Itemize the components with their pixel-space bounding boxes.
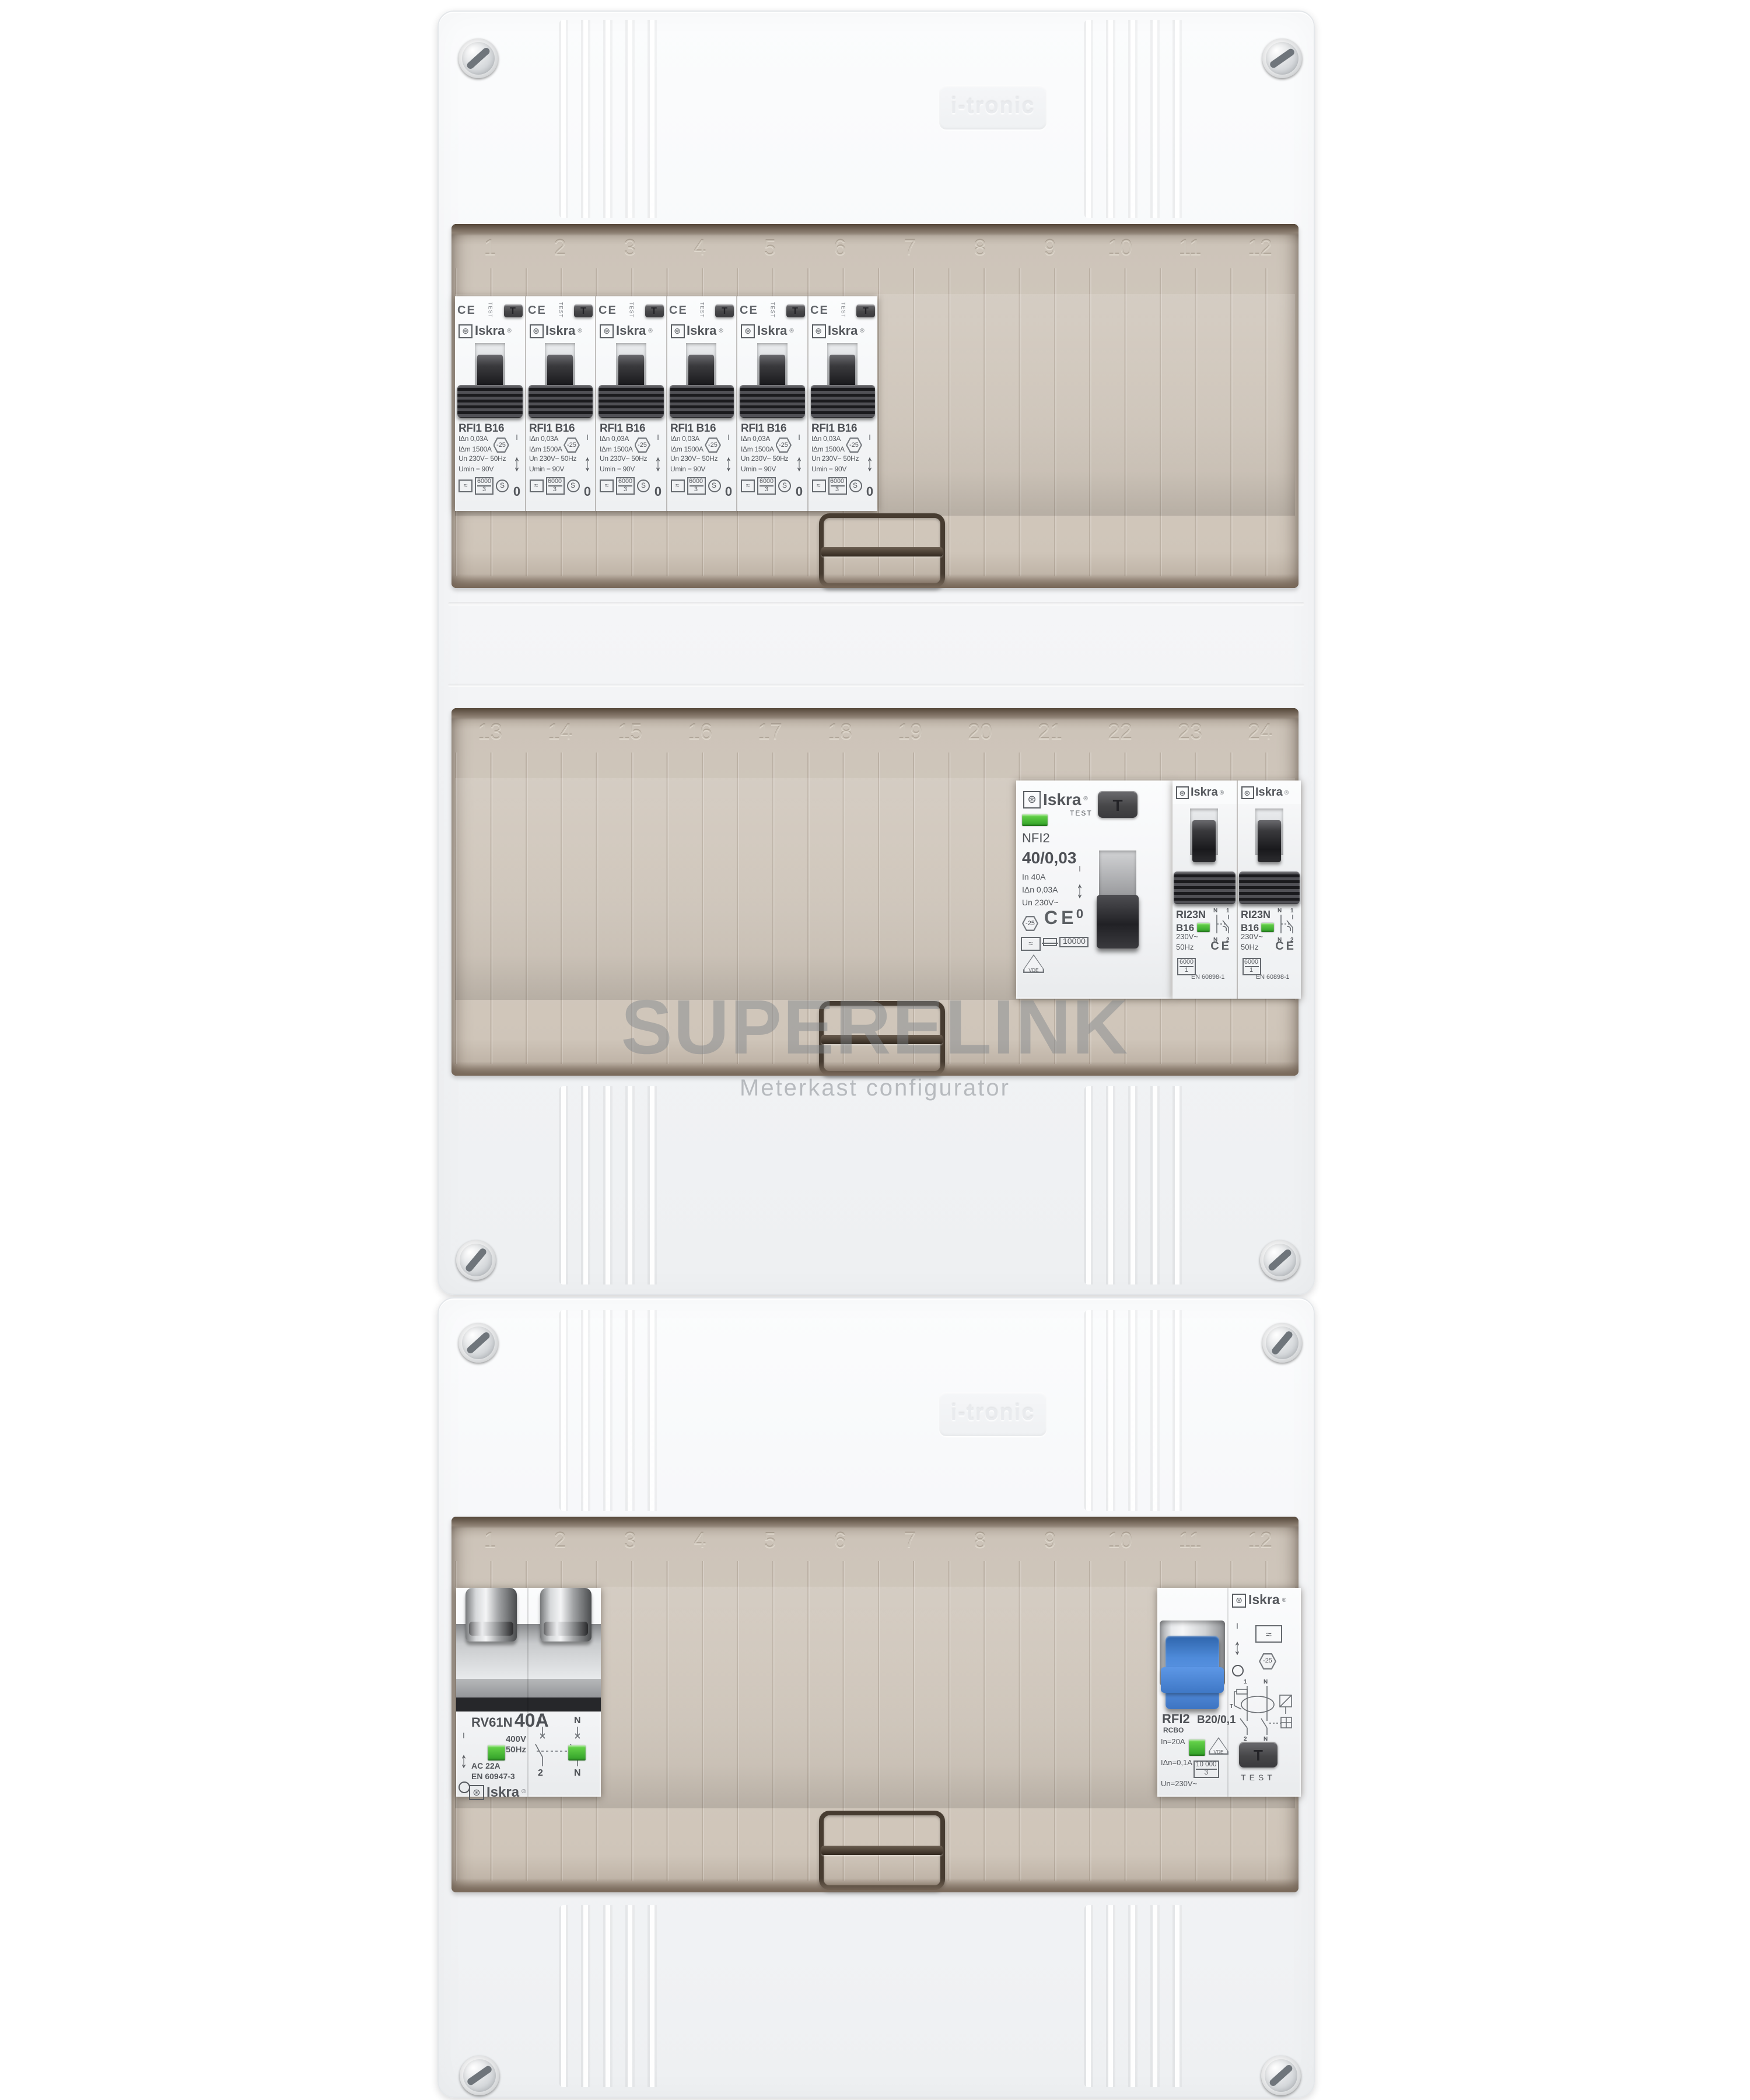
module-number: 2 (525, 1526, 595, 1559)
circuit-diagram: N 1 N 2 (1212, 905, 1235, 943)
module-number-strip: 123456789101112 (455, 233, 1295, 266)
screw (1260, 1240, 1300, 1280)
status-indicator-green (488, 1745, 505, 1760)
iskra-logo: ⊛ Iskra ® (459, 323, 512, 339)
utilization-category: AC 22A (471, 1763, 501, 1771)
module-number: 3 (595, 233, 665, 266)
din-rail-cover-row2: 131415161718192021222324 ⊛ Iskra ® TEST … (452, 708, 1298, 1076)
on-off-indicator: I ↕ 0 (723, 434, 734, 499)
breaking-capacity-badge: 60003 (828, 478, 846, 495)
latch-bar (821, 547, 943, 556)
breaking-capacity: 6000 (477, 479, 491, 486)
latch-bar (821, 1846, 943, 1856)
iskra-logo: ⊛ Iskra ® (529, 323, 582, 339)
model-label: NFI2 (1022, 832, 1050, 846)
on-symbol: I (463, 1732, 465, 1741)
module-number: 23 (1155, 717, 1225, 750)
iskra-logo: ⊛ Iskra ® (1241, 786, 1289, 799)
cover-latch (819, 1811, 945, 1890)
model-label: RV61N (471, 1716, 513, 1730)
model-label: RFI1 B16 (670, 422, 734, 435)
breaking-capacity-badge: 60003 (545, 478, 564, 495)
module-number: 17 (735, 717, 805, 750)
module-number: 6 (805, 1526, 875, 1559)
test-button: T (503, 304, 522, 317)
breaking-capacity-badge: 60003 (687, 478, 705, 495)
test-label: TEST (628, 302, 633, 318)
module-number: 2 (525, 233, 595, 266)
breaking-capacity-badge: 10000 (1059, 937, 1089, 947)
breaking-capacity-badge: 60003 (616, 478, 635, 495)
device-header: CE TEST T (740, 299, 804, 322)
brand-name: Iskra (1043, 790, 1081, 808)
module-number: 7 (875, 233, 945, 266)
iskra-logo: ⊛ Iskra ® (670, 323, 723, 339)
device-label-area: RFI1 B16 IΔn 0,03A IΔm 1500A Un 230V~ 50… (811, 422, 875, 510)
screw (460, 2056, 499, 2095)
off-symbol-circle (1231, 1665, 1243, 1676)
module-number: 8 (945, 233, 1015, 266)
registered-mark: ® (1220, 789, 1224, 796)
on-symbol: I (1079, 866, 1081, 874)
off-symbol: 0 (796, 485, 803, 499)
temp-rating-badge: -25 (1259, 1653, 1276, 1669)
surge-icon: ≈ (459, 480, 473, 493)
module-number: 4 (665, 1526, 735, 1559)
screw (459, 38, 498, 78)
svg-text:1: 1 (1226, 908, 1229, 914)
breaking-capacity: 6000 (618, 479, 632, 486)
enclosure-top: i-tronic (437, 10, 1315, 1295)
selectivity-mark: S (637, 480, 650, 493)
cover-latch (819, 1001, 945, 1076)
rcbo-rfi1-b16: CE TEST T ⊛ Iskra ® RFI1 B16 IΔn 0,03A (667, 296, 737, 511)
fuse-icon (1043, 938, 1057, 946)
spec-line: IΔn=0,1A (1161, 1759, 1192, 1767)
toggle-handle-blue (1165, 1636, 1219, 1709)
device-label-area: RFI1 B16 IΔn 0,03A IΔm 1500A Un 230V~ 50… (600, 422, 663, 510)
module-number: 6 (805, 233, 875, 266)
iskra-logo: ⊛ Iskra ® (1232, 1594, 1286, 1608)
mcb-ri23n-b16: ⊛ Iskra ® RI23N B16 230V~ 50Hz (1237, 780, 1301, 999)
iskra-logo: ⊛ Iskra ® (741, 323, 794, 339)
registered-mark: ® (507, 328, 511, 335)
test-button: T (715, 304, 734, 317)
breaker-toggle (526, 343, 595, 420)
on-off-indicator: I ↕ 0 (512, 434, 522, 499)
off-symbol: 0 (513, 485, 520, 499)
device-label-area: RFI1 B16 IΔn 0,03A IΔm 1500A Un 230V~ 50… (670, 422, 734, 510)
iskra-logo: ⊛ Iskra ® (811, 323, 864, 339)
rcbo-rfi1-b16: CE TEST T ⊛ Iskra ® RFI1 B16 IΔn 0,03A (737, 296, 808, 511)
selectivity-mark: S (849, 480, 862, 493)
spec-line: Un 230V~ (1022, 897, 1059, 910)
iskra-emblem-icon: ⊛ (459, 324, 473, 338)
test-label: TEST (769, 302, 774, 318)
breaking-capacity-row: 10000 (1043, 937, 1089, 947)
module-number: 22 (1085, 717, 1155, 750)
on-symbol: I (586, 434, 589, 442)
updown-arrow-icon: ↕ (654, 451, 661, 477)
updown-arrow-icon: ↕ (866, 451, 873, 477)
brand-name: Iskra (616, 324, 646, 338)
rcbo-group: CE TEST T ⊛ Iskra ® RFI1 B16 IΔn 0,03A (455, 296, 877, 511)
latch-bar (821, 1034, 943, 1044)
svg-text:N: N (1213, 908, 1217, 914)
iskra-emblem-icon: ⊛ (670, 324, 684, 338)
on-off-indicator: I ↕ (1232, 1623, 1242, 1676)
vent-ridges (1084, 1310, 1193, 1511)
iskra-logo: ⊛ Iskra ® (469, 1784, 526, 1800)
updown-arrow-icon: ↕ (725, 451, 732, 477)
updown-arrow-icon: ↕ (460, 1749, 467, 1773)
device-type-label: RCBO (1163, 1728, 1184, 1735)
circuit-diagram: 1 N T 2 N (1230, 1676, 1295, 1742)
iskra-emblem-icon: ⊛ (1023, 790, 1041, 808)
brand-name: Iskra (1255, 786, 1283, 799)
module-number-strip: 131415161718192021222324 (455, 717, 1295, 750)
module-number: 10 (1085, 1526, 1155, 1559)
toggle-handle (1193, 820, 1216, 862)
on-symbol: I (657, 434, 659, 442)
breaker-toggle (737, 343, 807, 420)
breaking-capacity: 6000 (689, 479, 703, 486)
rcbo-rfi1-b16: CE TEST T ⊛ Iskra ® RFI1 B16 IΔn 0,03A (526, 296, 596, 511)
module-number: 21 (1015, 717, 1085, 750)
distribution-board-photo: i-tronic i-tronic 123456789101112 CE TES… (0, 0, 1750, 2100)
vent-ridges (559, 1310, 668, 1511)
test-button: T (786, 304, 804, 317)
module-number: 1 (455, 233, 525, 266)
vde-mark: VDE (1023, 954, 1044, 973)
svg-text:N: N (1263, 1679, 1268, 1685)
status-indicator-green (1189, 1739, 1205, 1756)
on-off-indicator: I ↕ 0 (582, 434, 593, 499)
brand-name: Iskra (757, 324, 787, 338)
iskra-emblem-icon: ⊛ (469, 1784, 484, 1800)
module-number: 10 (1085, 233, 1155, 266)
screw (459, 1323, 498, 1363)
off-symbol: 0 (1076, 908, 1083, 922)
emboss-logo: i-tronic (939, 85, 1046, 129)
registered-mark: ® (719, 328, 723, 335)
updown-arrow-icon: ↕ (796, 451, 803, 477)
status-indicator-green (568, 1745, 586, 1760)
ce-mark: CE (457, 304, 476, 317)
selectivity-mark: S (778, 480, 791, 493)
on-off-indicator: I ↕ 0 (794, 434, 804, 499)
brand-name: Iskra (545, 324, 575, 338)
module-number: 8 (945, 1526, 1015, 1559)
device-header: CE TEST T (528, 299, 593, 322)
module-number: 12 (1225, 233, 1295, 266)
registered-mark: ® (1284, 789, 1289, 796)
status-indicator-green (1261, 923, 1274, 932)
screw (1262, 38, 1302, 78)
svg-text:2: 2 (1290, 937, 1294, 943)
emboss-logo: i-tronic (939, 1392, 1046, 1436)
terminal-label: 2 (538, 1767, 543, 1778)
registered-mark: ® (1083, 796, 1087, 803)
main-switch-rv61n: RV61N 40A 400V 50Hz AC 22A EN 60947-3 ⊛ … (456, 1588, 601, 1797)
toggle-grip (528, 385, 593, 418)
standard-label: EN 60947-3 (471, 1773, 515, 1781)
svg-text:2: 2 (1226, 937, 1229, 943)
module-number: 14 (525, 717, 595, 750)
mcb-ri23n-b16: ⊛ Iskra ® RI23N B16 230V~ 50Hz (1172, 780, 1237, 999)
din-rail-cover-row1: 123456789101112 CE TEST T ⊛ Iskra ® (452, 224, 1298, 588)
surge-icon: ≈ (600, 480, 614, 493)
breaking-capacity-badge: 60001 (1242, 958, 1261, 975)
panel-seam (448, 684, 1304, 687)
mcb-group: ⊛ Iskra ® RI23N B16 230V~ 50Hz (1172, 780, 1301, 999)
surge-icon: ≈ (741, 480, 755, 493)
terminal-label: N (574, 1715, 581, 1725)
test-label: TEST (1230, 1774, 1287, 1783)
switch-paddle (540, 1588, 591, 1641)
model-label: RFI1 B16 (811, 422, 875, 435)
screw (1261, 2056, 1301, 2095)
model-label: RFI1 B16 (459, 422, 522, 435)
module-number: 11 (1155, 1526, 1225, 1559)
svg-text:N: N (1277, 908, 1282, 914)
device-header: CE TEST T (598, 299, 663, 322)
module-number: 19 (875, 717, 945, 750)
module-number: 20 (945, 717, 1015, 750)
module-number: 16 (665, 717, 735, 750)
iskra-logo: ⊛ Iskra ® (1176, 786, 1224, 799)
breaking-capacity-badge: 10 0003 (1193, 1760, 1219, 1778)
breaking-capacity: 10 000 (1196, 1762, 1216, 1769)
iskra-emblem-icon: ⊛ (529, 324, 543, 338)
device-label-area: RFI1 B16 IΔn 0,03A IΔm 1500A Un 230V~ 50… (529, 422, 593, 510)
on-symbol: I (869, 434, 871, 442)
test-label: TEST (699, 302, 703, 318)
on-symbol: I (727, 434, 730, 442)
module-number: 4 (665, 233, 735, 266)
vde-label: VDE (1023, 954, 1044, 974)
on-symbol: I (516, 434, 518, 442)
iskra-emblem-icon: ⊛ (1241, 786, 1254, 799)
surge-icon: ≈ (670, 480, 684, 493)
vde-mark: VDE (1209, 1737, 1228, 1755)
test-label: TEST (487, 302, 492, 318)
module-number: 7 (875, 1526, 945, 1559)
updown-arrow-icon: ↕ (513, 451, 520, 477)
iskra-emblem-icon: ⊛ (1176, 786, 1189, 799)
on-off-indicator: I ↕ 0 (864, 434, 875, 499)
iskra-emblem-icon: ⊛ (600, 324, 614, 338)
toggle-grip (810, 385, 875, 418)
off-symbol: 0 (654, 485, 661, 499)
off-symbol: 0 (725, 485, 732, 499)
vent-ridges (559, 20, 668, 218)
selectivity-mark: S (708, 480, 720, 493)
brand-name: Iskra (687, 324, 716, 338)
registered-mark: ® (1282, 1597, 1286, 1604)
updown-arrow-icon: ↕ (1076, 878, 1083, 904)
breaker-toggle (1237, 804, 1301, 904)
panel-seam (448, 602, 1304, 605)
iskra-emblem-icon: ⊛ (741, 324, 755, 338)
spec-line: In 40A (1022, 871, 1059, 884)
spec-line: IΔn 0,03A (1022, 884, 1059, 897)
brand-name: Iskra (1191, 786, 1218, 799)
brand-name: Iskra (828, 324, 857, 338)
module-number: 24 (1225, 717, 1295, 750)
on-symbol: I (798, 434, 800, 442)
breaker-toggle (667, 343, 736, 420)
surge-icon: ≈ (1255, 1625, 1282, 1643)
test-button: T (856, 304, 875, 317)
module-number: 13 (455, 717, 525, 750)
brand-name: Iskra (1248, 1594, 1280, 1608)
breaking-capacity-badge: 60003 (475, 478, 494, 495)
device-header: CE TEST T (669, 299, 734, 322)
rcbo-rfi1-b16: CE TEST T ⊛ Iskra ® RFI1 B16 IΔn 0,03A (455, 296, 526, 511)
model-label: RFI1 B16 (741, 422, 804, 435)
device-label-area: RI23N B16 230V~ 50Hz CE 60001 EN 60898-1… (1241, 909, 1300, 998)
svg-text:N: N (1213, 937, 1217, 943)
rating-label: B16 (1241, 922, 1259, 933)
energy-class: 3 (477, 486, 491, 494)
toggle-grip (1174, 871, 1235, 904)
breaking-capacity: 6000 (1179, 959, 1193, 966)
switch-paddle (466, 1588, 517, 1641)
standard-label: EN 60898-1 (1191, 974, 1225, 981)
module-number-strip: 123456789101112 (455, 1526, 1295, 1559)
breaker-toggle (455, 343, 524, 420)
toggle-grip (740, 385, 804, 418)
rcbo-rfi2: RFI2 RCBO B20/0,1 In=20A IΔn=0,1A Un=230… (1157, 1588, 1301, 1797)
circuit-diagram: N 1 N 2 (1276, 905, 1300, 943)
energy-class: 3 (830, 486, 844, 494)
energy-class: 3 (759, 486, 773, 494)
vent-ridges (559, 1086, 668, 1284)
rating-label: 40/0,03 (1022, 848, 1076, 867)
svg-text:T: T (1230, 1703, 1233, 1710)
model-label: RFI1 B16 (600, 422, 663, 435)
iskra-logo: ⊛ Iskra ® (600, 323, 653, 339)
off-symbol-circle (458, 1781, 470, 1793)
toggle-grip (1238, 871, 1300, 904)
off-symbol: 0 (584, 485, 591, 499)
module-number: 1 (455, 1526, 525, 1559)
updown-arrow-icon: ↕ (1234, 1636, 1241, 1660)
voltage: 400V (506, 1734, 526, 1744)
module-seam (1227, 1588, 1228, 1797)
frequency: 50Hz (506, 1744, 526, 1755)
energy-class: 3 (618, 486, 632, 494)
test-label: TEST (1070, 811, 1093, 818)
test-label: TEST (840, 302, 845, 318)
toggle-grip (457, 385, 522, 418)
iskra-emblem-icon: ⊛ (811, 324, 825, 338)
rating-label: B16 (1176, 922, 1194, 933)
rcbo-rfi1-b16: CE TEST T ⊛ Iskra ® RFI1 B16 IΔn 0,03A (808, 296, 877, 511)
breaking-capacity: 6000 (548, 479, 562, 486)
off-symbol: 0 (866, 485, 873, 499)
status-indicator-green (1022, 814, 1048, 826)
breaking-capacity-badge: 60001 (1177, 958, 1196, 975)
breaker-toggle (1172, 804, 1236, 904)
cover-latch (819, 513, 945, 588)
module-number: 5 (735, 1526, 805, 1559)
vde-label: VDE (1209, 1737, 1228, 1756)
ce-mark: CE (669, 304, 688, 317)
temp-rating: -25 (1259, 1653, 1276, 1669)
registered-mark: ® (789, 328, 793, 335)
ce-mark: CE (598, 304, 617, 317)
rcbo-rfi1-b16: CE TEST T ⊛ Iskra ® RFI1 B16 IΔn 0,03A (596, 296, 667, 511)
rcd-toggle (1097, 850, 1139, 949)
ce-mark: CE (1044, 909, 1077, 930)
svg-text:N: N (1277, 937, 1282, 943)
module-number: 9 (1015, 1526, 1085, 1559)
breaking-capacity: 6000 (759, 479, 773, 486)
toggle-handle (1097, 895, 1139, 949)
spec-line: Un=230V~ (1161, 1780, 1197, 1788)
module-number: 18 (805, 717, 875, 750)
svg-text:N: N (1263, 1736, 1268, 1742)
registered-mark: ® (521, 1788, 526, 1796)
device-label-area: RV61N 40A 400V 50Hz AC 22A EN 60947-3 ⊛ … (456, 1711, 601, 1797)
energy-class: 3 (1196, 1769, 1216, 1777)
ce-mark: CE (810, 304, 829, 317)
ce-mark: CE (528, 304, 547, 317)
module-number: 5 (735, 233, 805, 266)
svg-text:1: 1 (1290, 908, 1294, 914)
svg-text:2: 2 (1244, 1736, 1247, 1742)
iskra-emblem-icon: ⊛ (1232, 1594, 1246, 1608)
selectivity-mark: S (496, 480, 509, 493)
selectivity-mark: S (566, 480, 579, 493)
vent-ridges (1084, 20, 1193, 218)
registered-mark: ® (577, 328, 582, 335)
toggle-handle (1258, 820, 1281, 862)
iskra-logo: ⊛ Iskra ® (1023, 790, 1088, 808)
toggle-grip (669, 385, 734, 418)
module-number: 11 (1155, 233, 1225, 266)
din-rail-cover-row3: 123456789101112 RV61N 40A 400V 50Hz AC 2… (452, 1517, 1298, 1892)
registered-mark: ® (860, 328, 864, 335)
breaking-capacity-badge: 60003 (757, 478, 776, 495)
on-off-indicator: I ↕ 0 (653, 434, 663, 499)
model-label: RFI2 (1162, 1713, 1190, 1727)
breaker-toggle (596, 343, 666, 420)
rcd-nfi2: ⊛ Iskra ® TEST T NFI2 40/0,03 In 40A IΔn… (1016, 780, 1172, 999)
device-label-area: RI23N B16 230V~ 50Hz CE 60001 EN 60898-1… (1176, 909, 1235, 998)
energy-class: 3 (689, 486, 703, 494)
temp-rating: -25 (1022, 916, 1038, 931)
registered-mark: ® (648, 328, 652, 335)
test-button: T (1098, 791, 1137, 818)
switch-band-dark (456, 1697, 601, 1711)
spec-lines: In 40A IΔn 0,03A Un 230V~ (1022, 871, 1059, 910)
status-indicator-green (1196, 923, 1209, 932)
screw (1262, 1323, 1302, 1363)
breaker-toggle (808, 343, 877, 420)
on-symbol: I (1236, 1623, 1238, 1631)
test-button: T (574, 304, 593, 317)
ce-mark: CE (740, 304, 758, 317)
updown-arrow-icon: ↕ (584, 451, 591, 477)
surge-icon: ≈ (811, 480, 825, 493)
on-off-indicator: I ↕ (459, 1732, 469, 1793)
module-number: 15 (595, 717, 665, 750)
breaking-capacity: 6000 (830, 479, 844, 486)
device-header: CE TEST T (457, 299, 522, 322)
